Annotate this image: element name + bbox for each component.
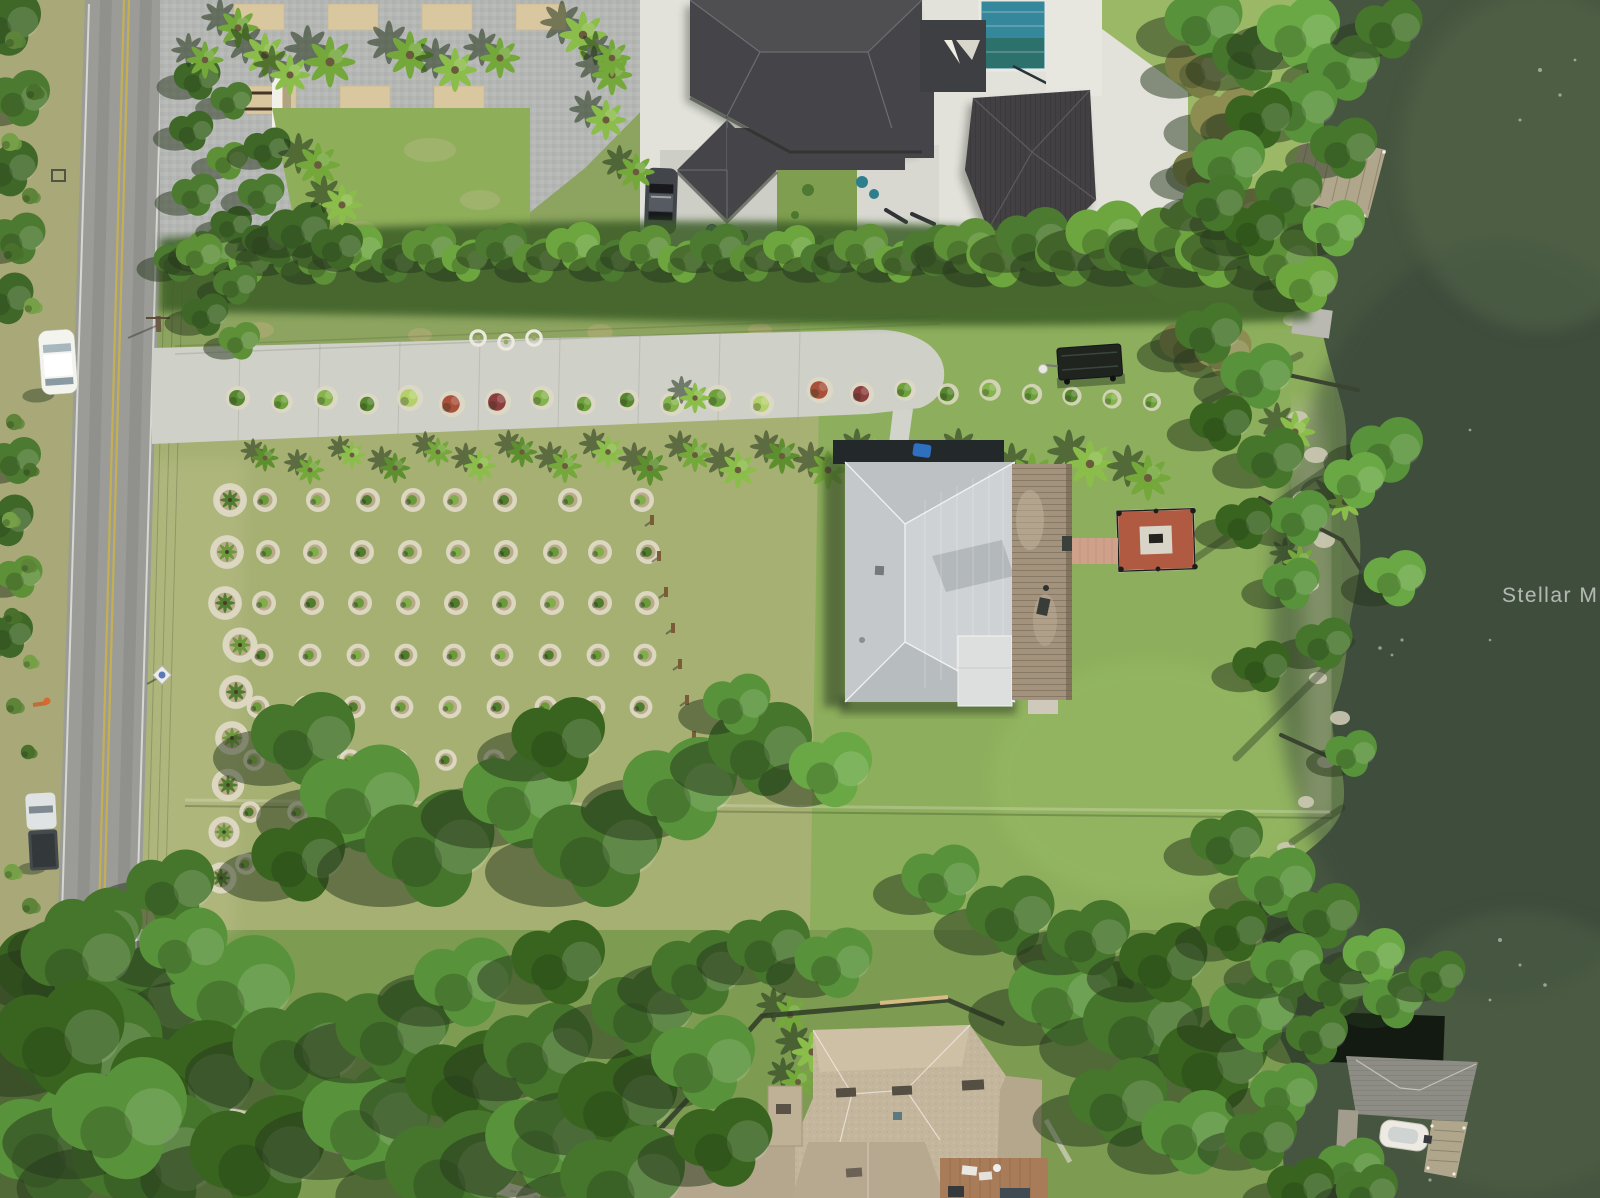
orchard-ring (543, 540, 567, 564)
big_rings-ringpalm (213, 483, 247, 517)
truck-bed-inner (31, 833, 56, 867)
shrub_row-shrub (1022, 384, 1042, 404)
orchard-ring (398, 540, 422, 564)
roof-bump (920, 20, 986, 92)
blue-kayak (912, 443, 932, 458)
big_rings-ringpalm (208, 586, 242, 620)
orchard-ring (443, 644, 466, 667)
paver-path (1072, 538, 1118, 564)
windshield (29, 805, 53, 813)
orchard-ring (636, 540, 660, 564)
shrub_row-shrub (1143, 393, 1161, 411)
orchard-ring (491, 644, 514, 667)
car-roof (43, 353, 72, 377)
orchard-ring (443, 488, 467, 512)
shrub_row-shrub (850, 382, 874, 406)
shrub_row-shrub (1102, 389, 1121, 408)
orchard-ring (300, 591, 324, 615)
pool-deck (1046, 0, 1102, 96)
watermark: Stellar MLS (1502, 584, 1600, 608)
lawn-dry-patch (404, 138, 456, 162)
orchard-ring (558, 488, 582, 512)
orchard-ring (446, 540, 470, 564)
hoop-base (1149, 534, 1163, 543)
orchard-ring (588, 540, 612, 564)
big_rings-ringpalm (208, 816, 239, 847)
orchard-ring (439, 696, 462, 719)
orchard-ring (306, 488, 330, 512)
shrub_row-shrub (485, 389, 511, 415)
orchard-ring (253, 488, 277, 512)
patio-furniture (993, 1164, 1001, 1172)
orchard-ring (540, 591, 564, 615)
orchard-ring (634, 644, 657, 667)
wood-deck (1012, 464, 1072, 714)
big_rings-ringpalm (219, 675, 253, 709)
orchard-ring (435, 749, 457, 771)
orchard-ring (256, 540, 280, 564)
door-mat (1062, 536, 1072, 551)
orchard-ring (391, 696, 414, 719)
aerial-photo: Stellar MLS (0, 0, 1600, 1198)
deck-step (1028, 700, 1058, 714)
orchard-ring (494, 540, 518, 564)
shrub_row-shrub (314, 386, 338, 410)
white-addition-roof (958, 636, 1012, 706)
orchard-ring (299, 644, 322, 667)
grill (948, 1186, 964, 1197)
spa (856, 176, 868, 188)
shrub_row-shrub (439, 391, 465, 417)
orchard-ring (539, 644, 562, 667)
lawn-dry-patch (460, 190, 500, 210)
shrub_row-shrub (226, 386, 250, 410)
shrub_row-shrub (574, 393, 596, 415)
orchard-ring (303, 540, 327, 564)
orchard-ring (347, 644, 370, 667)
shrub_row-shrub (271, 391, 293, 413)
orchard-ring (635, 591, 659, 615)
house-shadow-west (824, 455, 848, 707)
slate-pad (1000, 1188, 1030, 1198)
shrub_row-shrub (1062, 386, 1081, 405)
roof-connector (727, 128, 905, 170)
shrub_row-shrub (894, 379, 916, 401)
shrub_row-shrub (397, 385, 423, 411)
big_rings-ringpalm (222, 627, 257, 662)
shrub_row-shrub (750, 392, 774, 416)
vent (776, 1104, 791, 1114)
patio-furniture (979, 1171, 993, 1180)
patio-furniture (962, 1165, 978, 1176)
spa (869, 189, 879, 199)
roof-vent (875, 566, 884, 575)
basketball-court (1116, 507, 1198, 573)
orchard-ring (356, 488, 380, 512)
orchard-ring (350, 540, 374, 564)
skylight (846, 1167, 863, 1177)
orchard-ring (252, 591, 276, 615)
rear-deck (940, 1158, 1048, 1198)
yard-object (1043, 585, 1049, 591)
orchard-ring (588, 591, 612, 615)
orchard-ring (587, 644, 610, 667)
big_rings-ringpalm (210, 535, 244, 569)
teal-vent (893, 1112, 902, 1120)
shrub_row-shrub (617, 389, 639, 411)
orchard-ring (396, 591, 420, 615)
dry-patch (408, 328, 432, 342)
orchard-ring (444, 591, 468, 615)
roof-vent (859, 637, 865, 643)
outboard-motor (1423, 1135, 1432, 1144)
orchard-ring (493, 488, 517, 512)
shrub_row-shrub (979, 379, 1001, 401)
shrub_row-shrub (357, 393, 379, 415)
orchard-ring (395, 644, 418, 667)
dormer (768, 1086, 802, 1146)
shrub_row-shrub (937, 383, 959, 405)
orchard-ring (492, 591, 516, 615)
bucket (1039, 365, 1048, 374)
orchard-ring (348, 591, 372, 615)
orchard-ring (487, 696, 510, 719)
shrub_row-shrub (807, 377, 833, 403)
shrub_row-shrub (530, 386, 554, 410)
orchard-ring (630, 488, 654, 512)
orchard-ring (630, 696, 653, 719)
orchard-ring (401, 488, 425, 512)
